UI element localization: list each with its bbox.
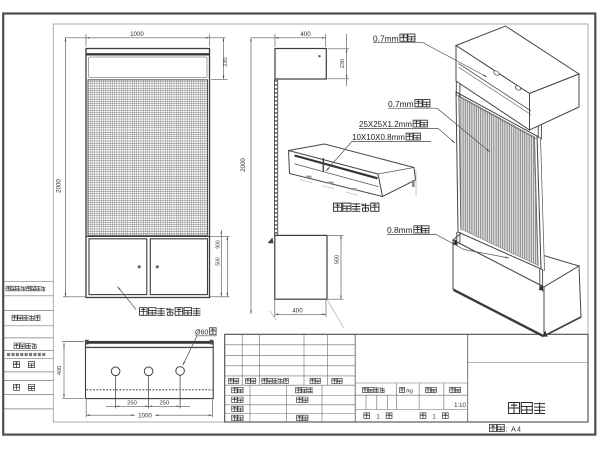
svg-text:400: 400: [57, 366, 63, 375]
svg-text:230: 230: [223, 57, 229, 66]
svg-text:1000: 1000: [130, 31, 144, 38]
svg-text:/kg: /kg: [406, 388, 413, 394]
svg-text:900: 900: [215, 240, 221, 249]
svg-text:Ø60: Ø60: [195, 329, 208, 336]
svg-text:400: 400: [300, 31, 311, 38]
svg-text:250: 250: [160, 401, 170, 407]
svg-text:0.8mm: 0.8mm: [387, 225, 413, 235]
svg-text:2000: 2000: [55, 179, 62, 193]
svg-text:25X25X1.2mm: 25X25X1.2mm: [359, 120, 412, 129]
svg-text:1000: 1000: [138, 412, 152, 419]
svg-text:0.7mm: 0.7mm: [373, 33, 399, 43]
svg-text:250: 250: [127, 401, 137, 407]
svg-text:0.7mm: 0.7mm: [388, 99, 414, 109]
svg-text:400: 400: [292, 308, 303, 315]
svg-text:1:10: 1:10: [454, 403, 466, 409]
svg-text:10X10X0.8mm: 10X10X0.8mm: [352, 133, 405, 142]
svg-text:500: 500: [335, 255, 341, 264]
svg-text:500: 500: [215, 257, 221, 266]
svg-text:: A4: : A4: [506, 424, 522, 433]
svg-text:2000: 2000: [240, 158, 247, 172]
svg-text:230: 230: [340, 59, 346, 68]
